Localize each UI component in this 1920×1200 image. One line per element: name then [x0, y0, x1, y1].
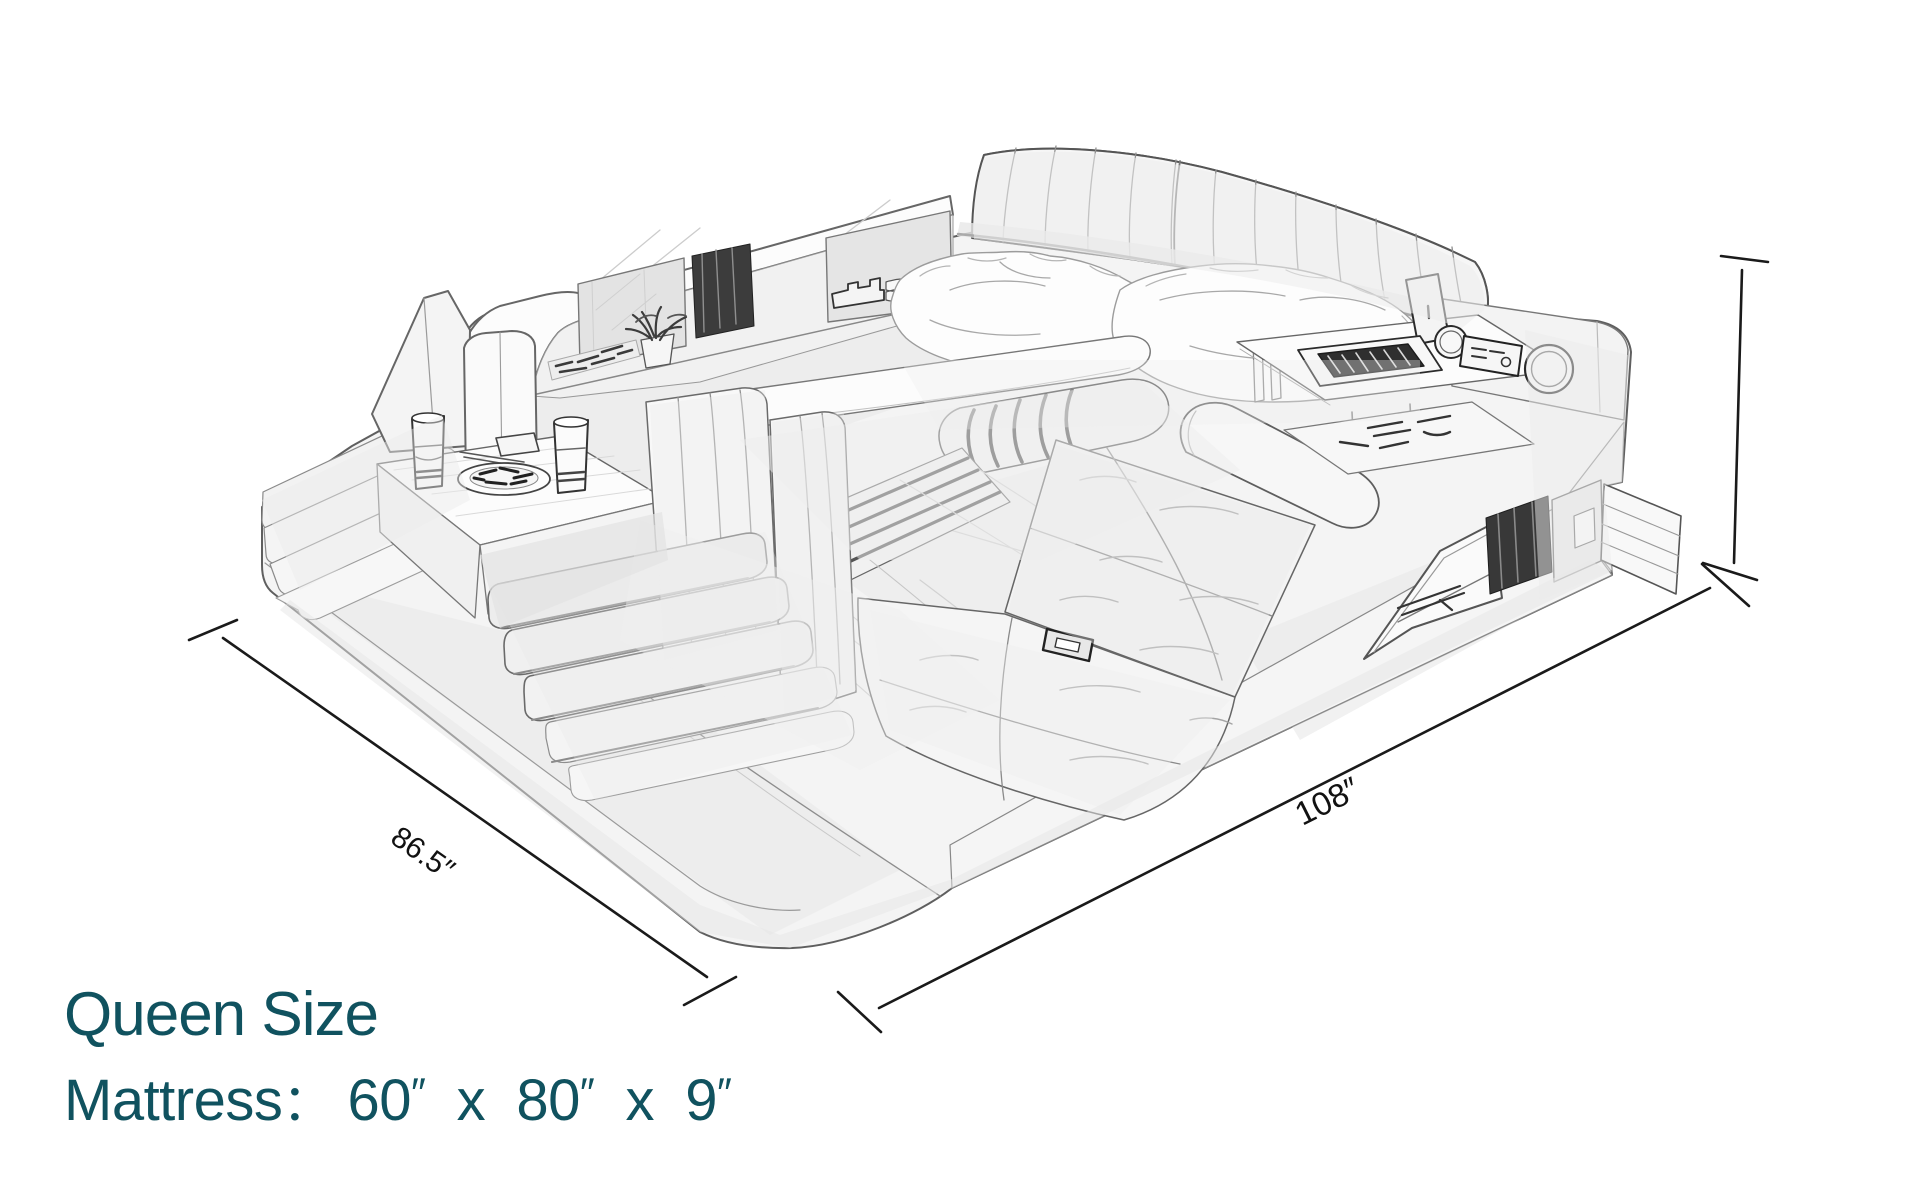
svg-text:108″: 108″	[1289, 769, 1366, 832]
svg-text:Mattress： 60″ x 80″ x 9″: Mattress： 60″ x 80″ x 9″	[64, 1068, 732, 1133]
svg-text:Queen Size: Queen Size	[64, 980, 378, 1049]
svg-text:86.5″: 86.5″	[385, 820, 461, 887]
